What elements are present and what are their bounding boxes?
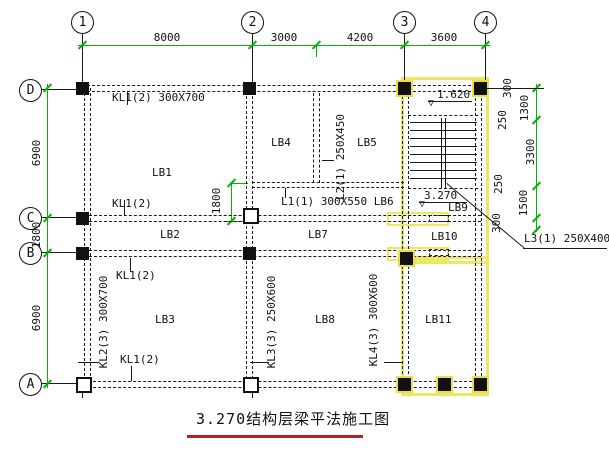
slab-label-lb3: LB3 (155, 314, 175, 326)
leader-underline (523, 248, 607, 249)
label-tick (384, 362, 403, 363)
wall-line-axis2 (252, 91, 253, 384)
wall-line-axisC (84, 215, 481, 216)
beam-label-kl1: KL1(2) (120, 354, 160, 366)
wall-line-axisB (84, 256, 481, 257)
stair-tread (410, 154, 477, 155)
beam-label-kl1: KL1(2) (116, 270, 156, 282)
dim-label-top-8000: 8000 (137, 32, 197, 44)
dim-label-right-3300: 3300 (524, 134, 538, 170)
stair-tread (410, 122, 477, 123)
beam-mark (429, 215, 449, 222)
dimension-line-inner (231, 183, 232, 222)
column (76, 247, 89, 260)
beam-label-kl4: KL4(3) 300X600 (367, 272, 381, 368)
dimension-line-top (78, 45, 490, 46)
column (76, 212, 89, 225)
wall-line-axis1 (84, 88, 85, 386)
dim-label-right-1300: 1300 (518, 90, 532, 126)
dim-label-left-1800: 1800 (30, 215, 44, 255)
slab-label-lb2: LB2 (160, 229, 180, 241)
stair-tread (410, 170, 477, 171)
column (243, 208, 259, 224)
axis-extension-line (486, 88, 544, 89)
dim-label-right-250b: 250 (492, 169, 506, 199)
column (243, 247, 256, 260)
beam-line-L2 (319, 93, 320, 183)
axis-bubble-1: 1 (71, 11, 94, 34)
wall-line-axis1 (90, 88, 91, 386)
column (243, 377, 259, 393)
wall-line-axis2 (246, 91, 247, 384)
beam-mark (429, 249, 449, 256)
column (76, 82, 89, 95)
column-selected[interactable] (398, 250, 415, 267)
wall-line-axisC (84, 221, 481, 222)
dim-label-top-3600: 3600 (414, 32, 474, 44)
column (76, 377, 92, 393)
slab-label-lb9: LB9 (448, 202, 468, 214)
drawing-title: 3.270结构层梁平法施工图 (196, 408, 390, 429)
slab-label-lb7: LB7 (308, 229, 328, 241)
dim-label-right-1500: 1500 (517, 185, 531, 221)
label-tick (131, 366, 132, 381)
column-selected[interactable] (436, 376, 453, 393)
beam-label-kl3: KL3(3) 250X600 (265, 274, 279, 370)
wall-line-axisB (84, 250, 481, 251)
label-tick (322, 160, 334, 161)
slab-label-lb4: LB4 (271, 137, 291, 149)
level-mark-icon: ▽ (428, 99, 434, 109)
stair-tread (410, 130, 477, 131)
stair-tread (410, 138, 477, 139)
axis-bubble-3: 3 (393, 11, 416, 34)
dimension-line-left (47, 84, 48, 388)
stair-tread (410, 178, 477, 179)
beam-label-kl1: KL1(2) (112, 198, 152, 210)
wall-line-axis3 (408, 91, 409, 384)
beam-line-L1 (252, 182, 404, 183)
axis-bubble-4: 4 (474, 11, 497, 34)
beam-label-l2: L2(1) 250X450 (334, 112, 348, 202)
level-label-upper: 1.620 (437, 89, 470, 101)
dim-label-left-6900: 6900 (30, 298, 44, 338)
beam-label-kl1-full: KL1(2) 300X700 (112, 92, 205, 104)
slab-label-lb1: LB1 (152, 167, 172, 179)
label-tick (78, 362, 99, 363)
dim-label-top-3000: 3000 (254, 32, 314, 44)
stair-tread (410, 146, 477, 147)
level-mark-icon: ▽ (419, 200, 425, 210)
beam-line-L1 (252, 187, 404, 188)
dim-label-right-300b: 300 (490, 208, 504, 238)
beam-label-l3: L3(1) 250X400 (524, 233, 609, 245)
slab-label-lb11: LB11 (425, 314, 452, 326)
slab-label-lb10: LB10 (431, 231, 458, 243)
wall-line-axis4 (475, 88, 476, 386)
axis-bubble-A: A (19, 373, 42, 396)
wall-line-axis4 (481, 88, 482, 386)
beam-label-kl2: KL2(3) 300X700 (97, 274, 111, 370)
column-selected[interactable] (472, 376, 489, 393)
stair-landing-line (408, 115, 478, 116)
stair-tread (410, 162, 477, 163)
dim-label-top-4200: 4200 (330, 32, 390, 44)
level-underline (428, 101, 472, 102)
axis-bubble-2: 2 (241, 11, 264, 34)
wall-line-axisD (82, 85, 481, 86)
column-selected[interactable] (396, 376, 413, 393)
wall-line-axisA (78, 381, 487, 382)
dim-label-left-6900: 6900 (30, 133, 44, 173)
beam-line-L2 (313, 93, 314, 183)
wall-line-axisA (78, 387, 487, 388)
dim-label-right-250: 250 (496, 105, 510, 135)
column-selected[interactable] (396, 80, 413, 97)
column (243, 82, 256, 95)
stair-stringer (445, 118, 446, 188)
dimension-extension (316, 45, 317, 57)
wall-line-axis3 (402, 91, 403, 384)
slab-label-lb8: LB8 (315, 314, 335, 326)
cad-drawing-canvas[interactable]: 1 2 3 4 D C B A 8000 3000 4200 3600 6900… (0, 0, 609, 449)
axis-bubble-D: D (19, 79, 42, 102)
title-underline (187, 435, 363, 438)
slab-label-lb5: LB5 (357, 137, 377, 149)
stair-stringer (441, 118, 442, 188)
